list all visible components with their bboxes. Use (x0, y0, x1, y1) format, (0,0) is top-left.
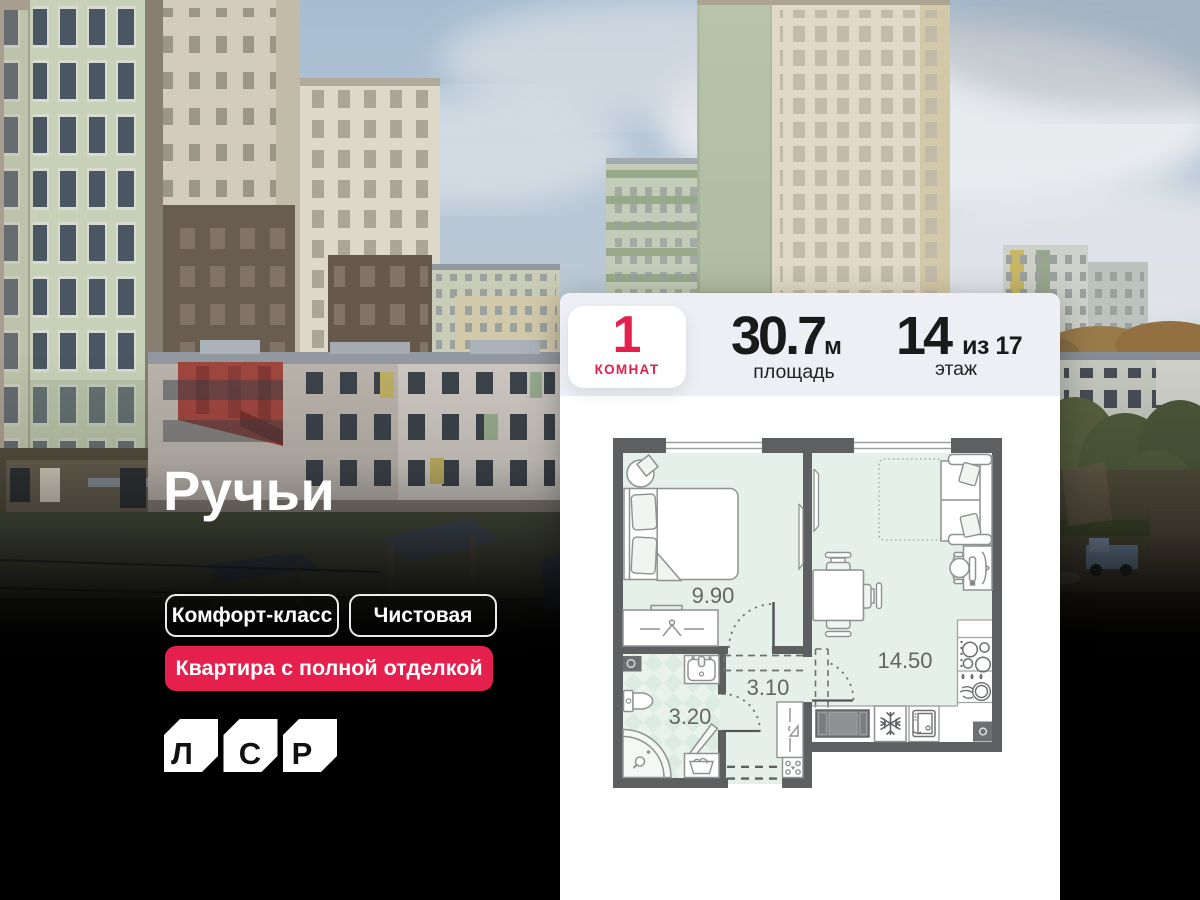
svg-text:3.20: 3.20 (669, 704, 712, 729)
svg-text:3.10: 3.10 (747, 675, 790, 700)
svg-text:14.50: 14.50 (877, 648, 932, 673)
svg-text:9.90: 9.90 (692, 583, 735, 608)
svg-text:Л: Л (171, 736, 193, 771)
svg-text:Р: Р (292, 736, 313, 771)
svg-text:С: С (239, 736, 261, 771)
